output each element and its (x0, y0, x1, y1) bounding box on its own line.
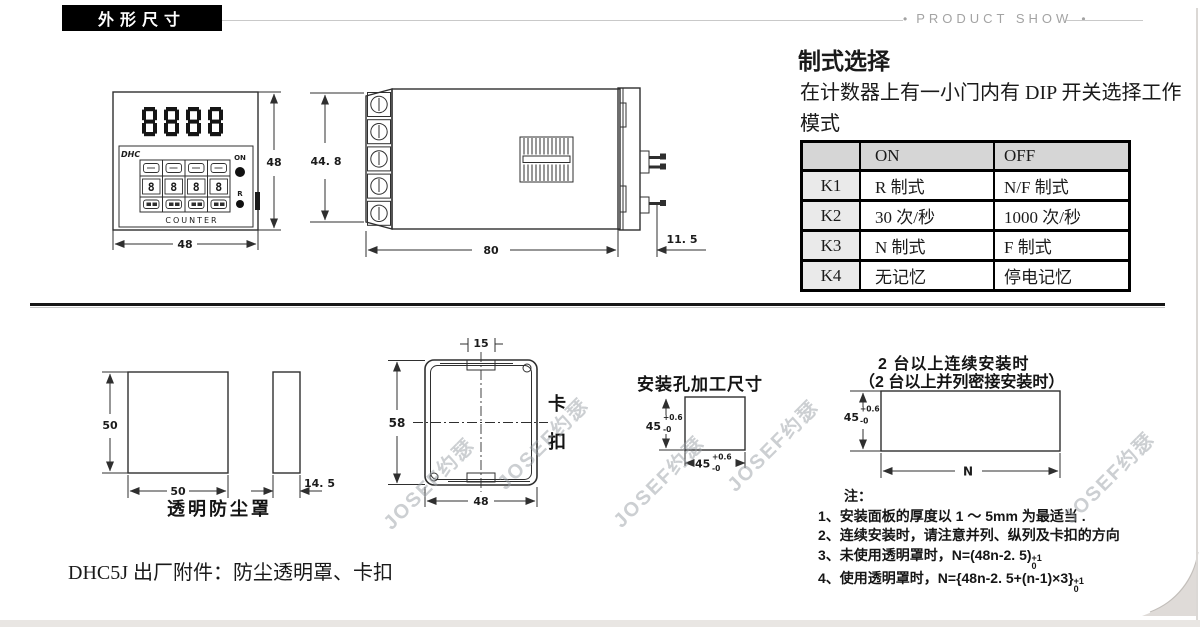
mode-select-description: 在计数器上有一小门内有 DIP 开关选择工作模式 (800, 78, 1192, 140)
cell-off: F 制式 (994, 231, 1130, 261)
section-label-text: 外形尺寸 (98, 6, 186, 30)
dust-cover-caption: 透明防尘罩 (167, 495, 272, 521)
cell-key: K4 (802, 261, 861, 291)
page-curl (1138, 548, 1200, 620)
bullet-icon: • (1081, 13, 1085, 25)
note-item-text: 4、使用透明罩时，N={48n-2. 5+(n-1)×3} (818, 570, 1074, 586)
connector-pins (649, 154, 666, 207)
front-height-dim: 48 (266, 156, 281, 169)
multi-v-dim: 45 (844, 411, 859, 424)
front-width-dim: 48 (177, 238, 192, 251)
mount-h-tol-minus: -0 (712, 464, 720, 473)
cell-key: K2 (802, 201, 861, 231)
side-view-outline (366, 88, 649, 230)
front-view-drawing: 8 8 8 8 DHC ON R COUNTER 48 48 (95, 80, 300, 258)
tolerance-stack: +10 (1032, 554, 1042, 570)
mount-h-tol-plus: +0.6 (712, 453, 732, 462)
dust-depth-dim: 14. 5 (304, 477, 335, 490)
multi-v-tol-plus: +0.6 (860, 405, 880, 414)
tol-bottom: 0 (1032, 562, 1037, 570)
mount-v-tol-plus: +0.6 (663, 413, 683, 422)
cell-on: 无记忆 (860, 261, 994, 291)
clip-notch-dim: 15 (473, 337, 488, 350)
section-divider (30, 303, 1165, 306)
dust-height-dim: 50 (102, 419, 118, 432)
product-show: • PRODUCT SHOW • (903, 11, 1086, 26)
side-bezel-dim: 11. 5 (667, 233, 698, 246)
reset-label: R (237, 190, 243, 198)
side-length-dim: 80 (483, 244, 499, 257)
side-dimensions (310, 93, 706, 257)
multi-mount-outline (881, 391, 1060, 451)
mount-v-tol-minus: -0 (663, 425, 671, 434)
accessories-note: DHC5J 出厂附件：防尘透明罩、卡扣 (68, 556, 393, 585)
side-latch (255, 192, 260, 210)
table-row: K4 无记忆 停电记忆 (802, 261, 1130, 291)
table-row: K3 N 制式 F 制式 (802, 231, 1130, 261)
header-off: OFF (994, 142, 1130, 171)
terminal-screws (368, 93, 391, 226)
counter-label: COUNTER (165, 216, 218, 225)
dust-cover-outline (128, 372, 300, 473)
cell-key: K3 (802, 231, 861, 261)
wheel-digit: 8 (148, 180, 155, 194)
note-item-text: 3、未使用透明罩时，N=(48n-2. 5) (818, 547, 1032, 563)
page-right-edge (1196, 8, 1198, 620)
side-view-drawing: 44. 8 80 11. 5 (310, 75, 710, 265)
side-height-dim: 44. 8 (311, 155, 342, 168)
note-item: 2、连续安装时，请注意并列、纵列及卡扣的方向 (818, 526, 1120, 546)
mode-select-title: 制式选择 (798, 42, 890, 76)
seven-segment-display (142, 107, 223, 136)
vent-slots (520, 137, 573, 182)
section-divider-shadow (30, 307, 1165, 308)
cell-key: K1 (802, 171, 861, 201)
table-header-row: ON OFF (802, 142, 1130, 171)
cell-on: N 制式 (860, 231, 994, 261)
header-rule-left (222, 20, 903, 21)
cell-off: 1000 次/秒 (994, 201, 1130, 231)
cell-off: N/F 制式 (994, 171, 1130, 201)
mount-v-dim: 45 (646, 420, 661, 433)
product-show-label: PRODUCT SHOW (916, 11, 1072, 26)
table-row: K1 R 制式 N/F 制式 (802, 171, 1130, 201)
section-label: 外形尺寸 (62, 5, 222, 31)
cell-on: R 制式 (860, 171, 994, 201)
dust-cover-dimensions (102, 372, 322, 498)
wheel-digit: 8 (215, 180, 222, 194)
note-item: 4、使用透明罩时，N={48n-2. 5+(n-1)×3}+10 (818, 569, 1120, 592)
multi-mount-drawing: 45 +0.6 -0 N (810, 345, 1140, 485)
table-row: K2 30 次/秒 1000 次/秒 (802, 201, 1130, 231)
note-item: 3、未使用透明罩时，N=(48n-2. 5)+10 (818, 546, 1120, 569)
datasheet-page: 外形尺寸 • PRODUCT SHOW • 制式选择 在计数器上有一小门内有 D… (0, 0, 1200, 627)
multi-v-tol-minus: -0 (860, 417, 868, 426)
reset-led-icon (236, 200, 244, 208)
on-led-label: ON (234, 154, 246, 162)
page-bottom-edge (0, 620, 1200, 627)
multi-n-dim: N (963, 465, 973, 479)
header-blank (802, 142, 861, 171)
wheel-digit: 8 (193, 180, 200, 194)
header-on: ON (860, 142, 994, 171)
dip-mode-table: ON OFF K1 R 制式 N/F 制式 K2 30 次/秒 1000 次/秒… (800, 140, 1131, 292)
wheel-digit: 8 (170, 180, 177, 194)
bullet-icon: • (903, 13, 907, 25)
on-led-icon (235, 167, 245, 177)
tol-bottom: 0 (1074, 585, 1079, 593)
clip-width-dim: 48 (473, 495, 488, 508)
dust-cover-drawing: 50 50 14. 5 (75, 340, 345, 502)
header-rule-right (1066, 20, 1143, 21)
cell-on: 30 次/秒 (860, 201, 994, 231)
tolerance-stack: +10 (1074, 577, 1084, 593)
cell-off: 停电记忆 (994, 261, 1130, 291)
clip-height-dim: 58 (389, 416, 406, 430)
brand-logo: DHC (121, 150, 140, 159)
